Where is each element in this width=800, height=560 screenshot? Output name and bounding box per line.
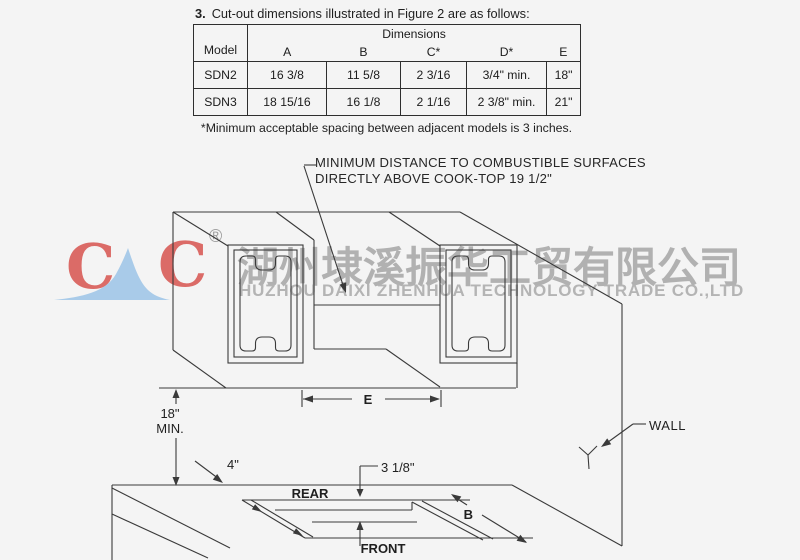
cutout-left-diag-inner — [251, 500, 313, 537]
wall-symbol-prong-2 — [588, 446, 597, 455]
unit-depth-line-left — [173, 212, 228, 246]
left-module-outer — [228, 245, 303, 363]
rear-gap-label: 3 1/8" — [381, 460, 415, 475]
manual-page: 3.Cut-out dimensions illustrated in Figu… — [0, 0, 800, 560]
installation-drawing: E 18" MIN. 4" 3 1/8" — [0, 0, 800, 560]
b-arrow-upper — [451, 494, 461, 502]
left-module-inner — [234, 250, 297, 357]
e-label: E — [364, 392, 373, 407]
right-module-inner — [446, 250, 511, 357]
wall-arrowhead — [601, 438, 611, 447]
e-arrow-left — [303, 396, 313, 403]
right-module-cutout — [452, 256, 505, 351]
unit-right-slope — [460, 212, 622, 304]
unit-depth-line-right — [389, 212, 440, 246]
front-label: FRONT — [361, 541, 406, 556]
wall-label: WALL — [649, 418, 686, 433]
wall-symbol-prong-1 — [579, 447, 588, 455]
cutout-right-diag-inner — [422, 501, 493, 539]
unit-left-bottom-diag — [173, 350, 226, 388]
four-inch-label: 4" — [227, 457, 239, 472]
cutout-left-arrow-2 — [293, 528, 303, 536]
rear-gap-arrow-down — [357, 489, 364, 497]
e-arrow-right — [430, 396, 440, 403]
counter-front-diag-2 — [112, 514, 208, 558]
wall-symbol-prong-3 — [588, 455, 589, 469]
left-module-cutout — [240, 256, 291, 351]
min-height-label-2: MIN. — [156, 421, 183, 436]
b-arrow-lower — [517, 535, 527, 543]
b-label: B — [464, 507, 473, 522]
note-arrowhead — [340, 282, 347, 293]
note-leader-line — [304, 166, 344, 288]
min-height-label-1: 18" — [160, 406, 179, 421]
counter-wall-diag — [512, 485, 622, 546]
min-height-arrow-up — [173, 389, 180, 398]
rear-label: REAR — [292, 486, 329, 501]
recess-diag — [386, 349, 440, 387]
unit-depth-line-center — [276, 212, 314, 240]
counter-front-diag-1 — [112, 488, 230, 548]
